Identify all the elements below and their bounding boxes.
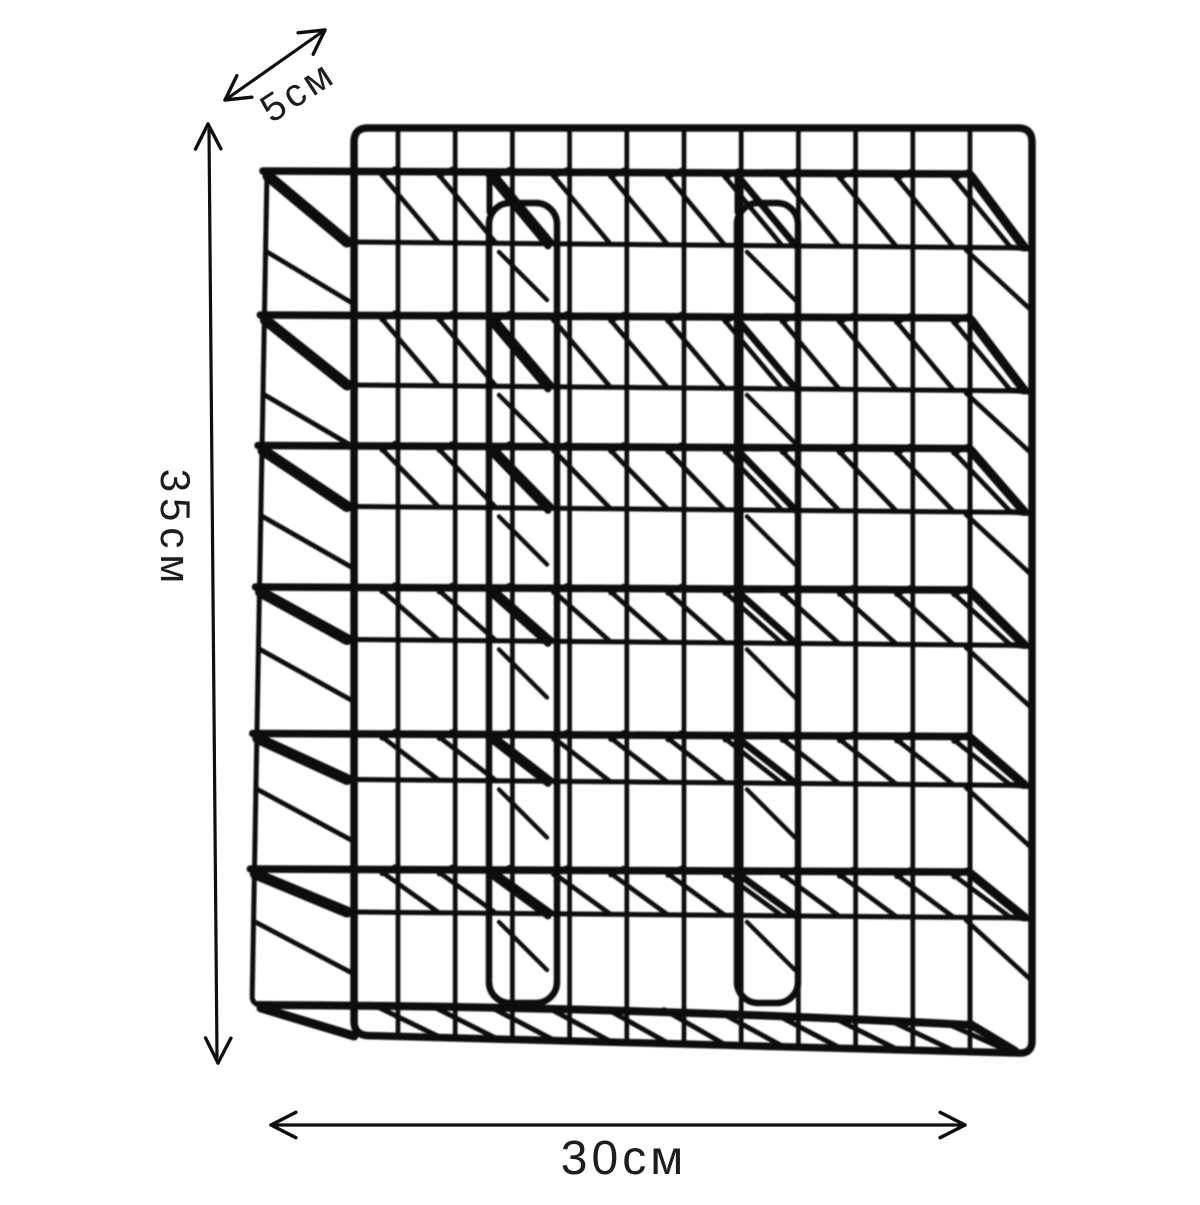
svg-text:30см: 30см <box>561 1132 687 1185</box>
svg-text:35см: 35см <box>152 469 199 590</box>
